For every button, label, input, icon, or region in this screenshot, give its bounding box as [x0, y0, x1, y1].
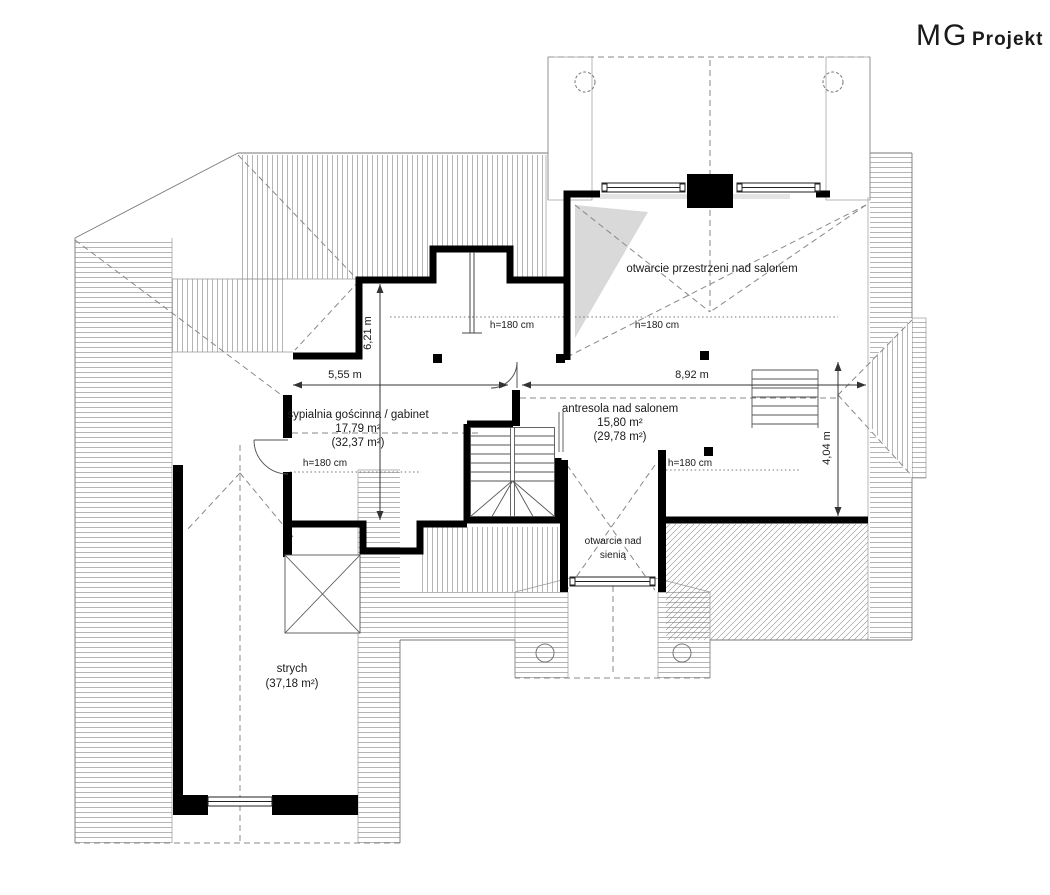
height-label-4: h=180 cm [668, 458, 712, 469]
dim-label-6-21: 6,21 m [362, 316, 374, 350]
room-label-open-over-salon: otwarcie przestrzeni nad salonem [626, 263, 797, 275]
room-area: 15,80 m² [597, 417, 643, 429]
room-name-line1: otwarcie nad [585, 536, 642, 547]
room-name: sypialnia gościnna / gabinet [287, 409, 429, 421]
logo-projekt: Projekt [972, 29, 1043, 50]
room-name-line2: sienią [600, 550, 627, 561]
attic-shaft-box [285, 555, 360, 633]
room-floor-area: (29,78 m²) [593, 431, 646, 443]
post [433, 354, 442, 363]
logo: MG Projekt [916, 19, 1043, 52]
height-label-1: h=180 cm [490, 320, 534, 331]
room-name: otwarcie przestrzeni nad salonem [626, 263, 797, 275]
logo-mg: MG [916, 19, 968, 52]
window-bottom-dormer [570, 577, 655, 586]
height-label-3: h=180 cm [303, 458, 347, 469]
dim-label-5-55: 5,55 m [328, 369, 362, 381]
post [556, 354, 565, 363]
room-floor-area: (37,18 m²) [265, 678, 318, 690]
dim-label-8-92: 8,92 m [675, 369, 709, 381]
room-area: 17,79 m² [335, 423, 381, 435]
window-attic [208, 797, 272, 806]
dim-label-4-04: 4,04 m [821, 431, 833, 465]
room-name: antresola nad salonem [562, 403, 678, 415]
window-top-left [602, 183, 685, 192]
floor-plan: 6,21 m 5,55 m 8,92 m 4,04 m h=180 cm h=1… [0, 0, 1050, 895]
window-top-right [737, 183, 820, 192]
height-label-2: h=180 cm [635, 320, 679, 331]
chimney-block [687, 174, 733, 208]
room-name: strych [277, 663, 308, 675]
floor-plan-page: 6,21 m 5,55 m 8,92 m 4,04 m h=180 cm h=1… [0, 0, 1050, 895]
room-floor-area: (32,37 m²) [331, 437, 384, 449]
post [704, 447, 713, 456]
post [700, 351, 709, 360]
